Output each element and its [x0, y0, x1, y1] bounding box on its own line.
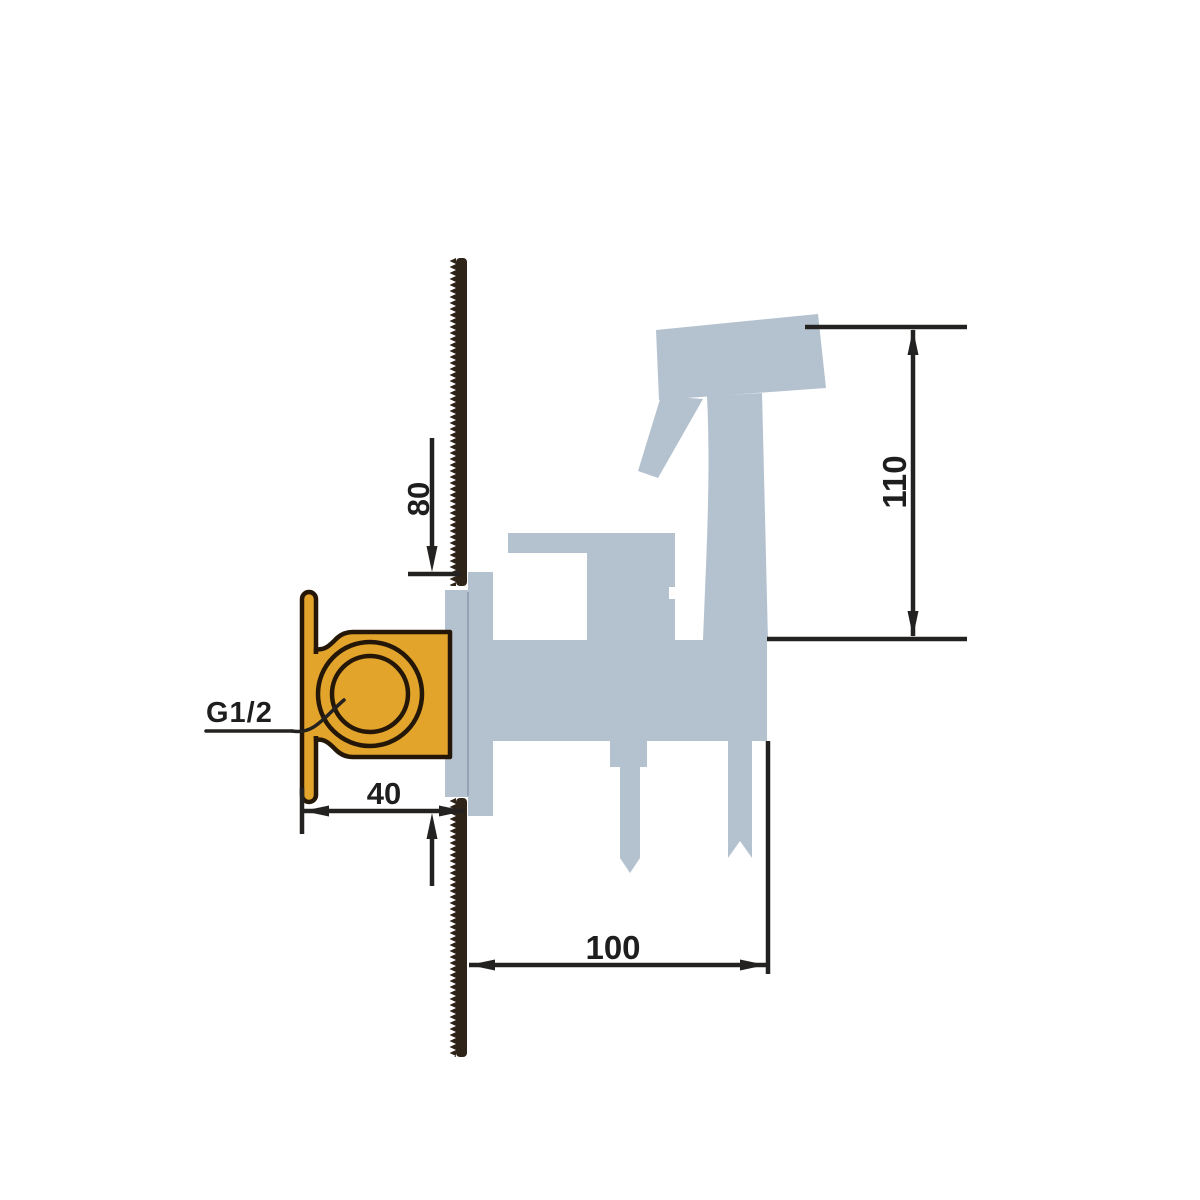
mixer-valve-column	[587, 533, 675, 643]
valve-block	[316, 632, 450, 757]
mixer-body	[493, 640, 767, 741]
dimension-100-label: 100	[585, 929, 640, 966]
wall-line-upper	[456, 258, 467, 586]
outlet-tube	[620, 765, 640, 873]
wall-hatching-upper	[448, 258, 456, 586]
technical-drawing-canvas: 80 110 40 100 G1/2	[0, 0, 1200, 1200]
escutcheon-plate	[468, 572, 493, 816]
hose-tube	[728, 741, 752, 858]
dimension-40-label: 40	[367, 776, 401, 811]
installation-diagram: 80 110 40 100 G1/2	[0, 0, 1200, 1200]
dimension-110-label: 110	[876, 455, 913, 508]
handle-gap-notch	[669, 587, 676, 599]
dimension-80-label: 80	[401, 482, 436, 516]
sprayer-handle-shaft	[703, 393, 768, 640]
wall-line-lower	[456, 798, 467, 1057]
thread-size-label: G1/2	[206, 697, 273, 729]
outlet-stub	[610, 741, 647, 767]
wall-hatching-lower	[448, 798, 456, 1057]
